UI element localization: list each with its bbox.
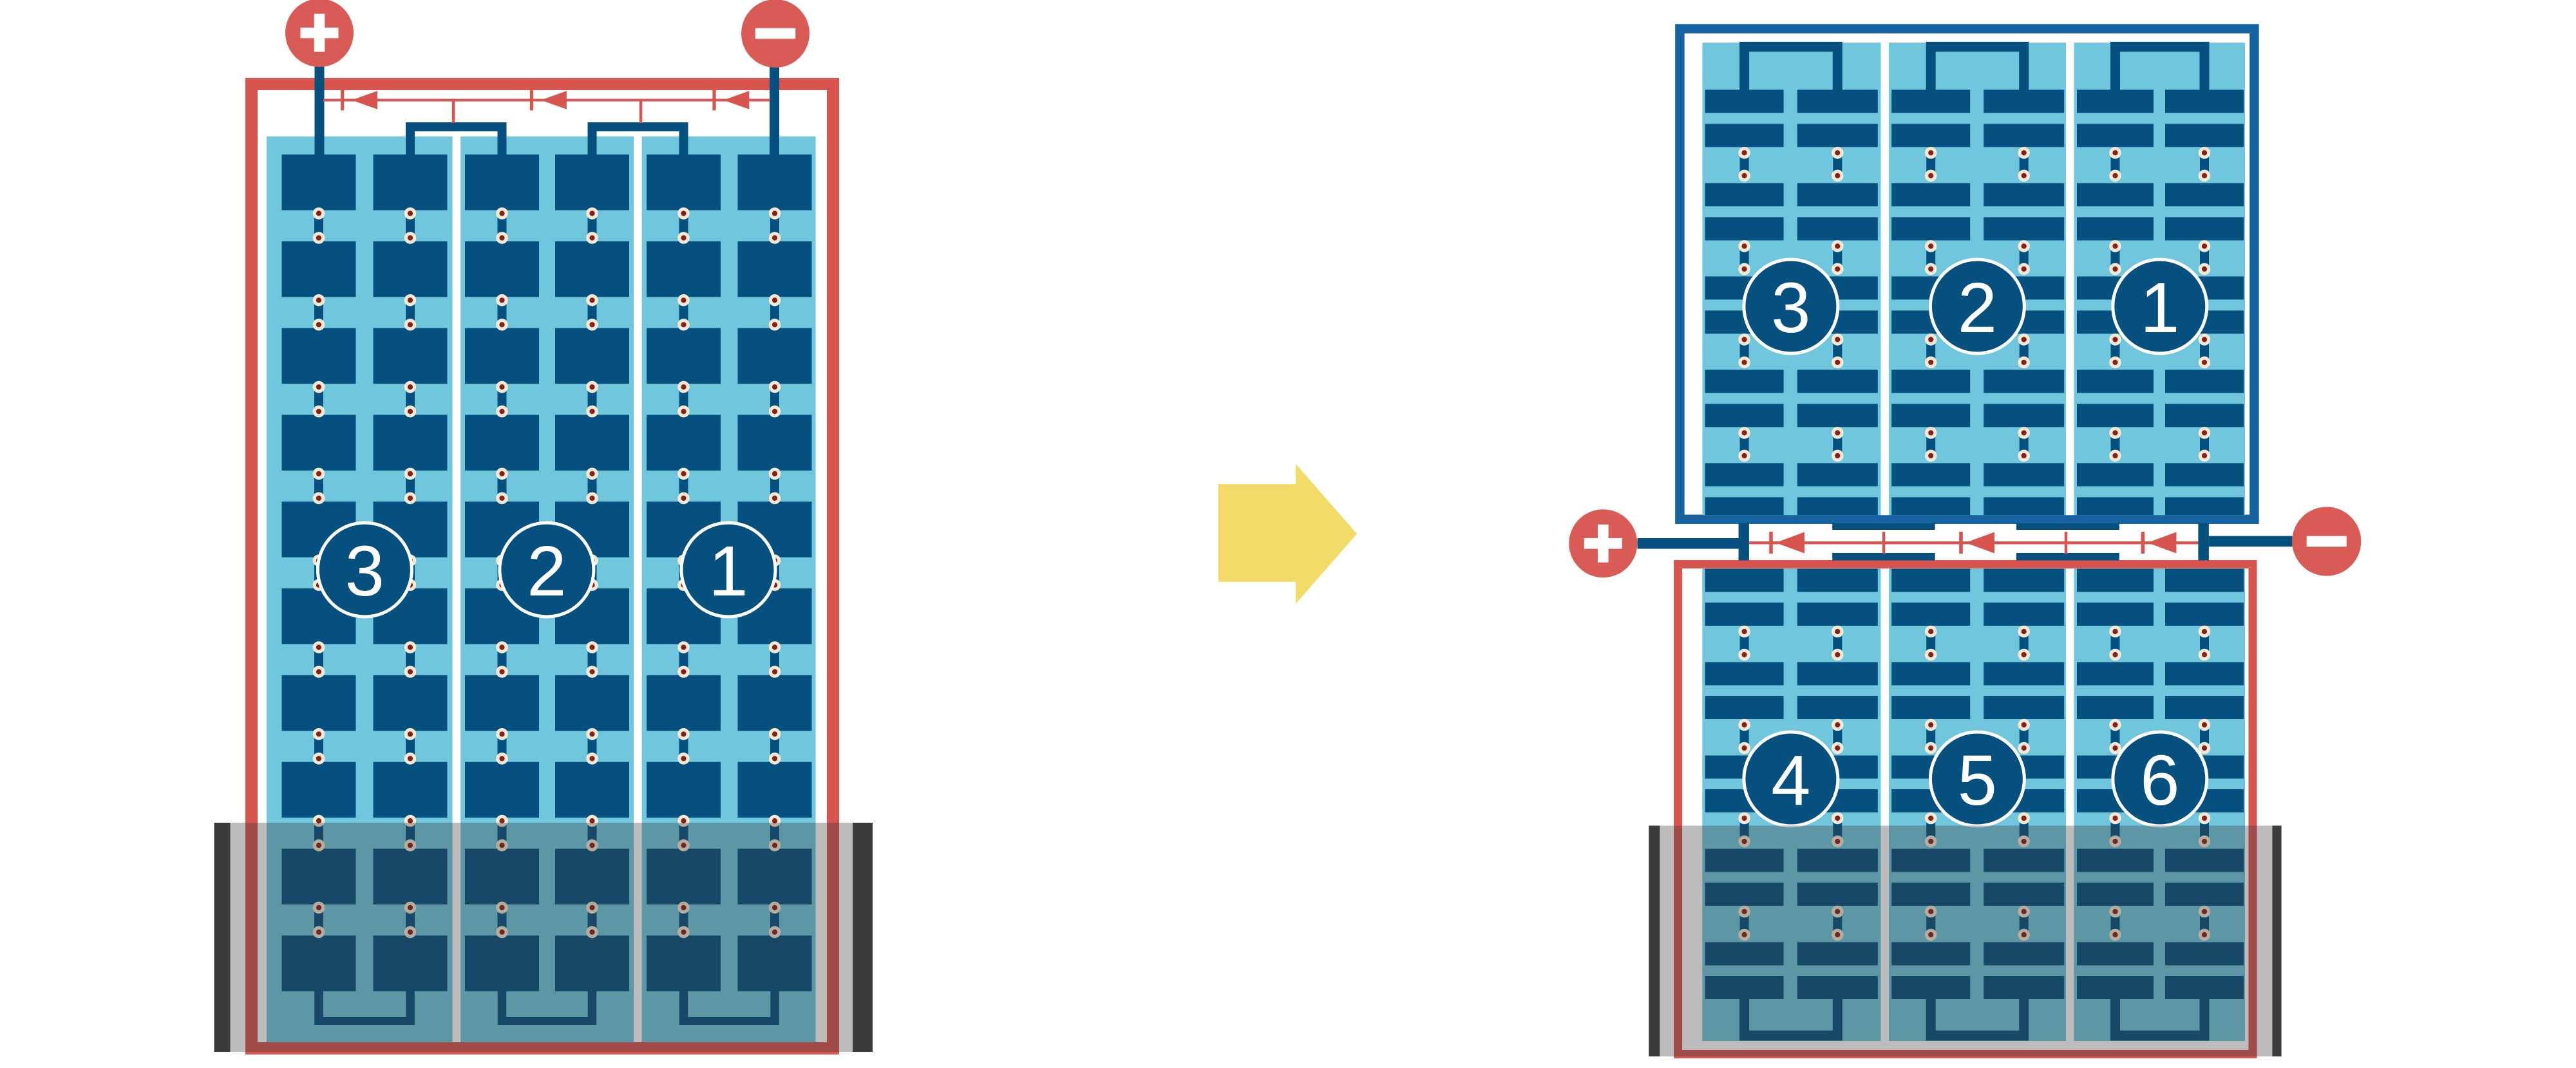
svg-text:3: 3 [1771, 268, 1810, 348]
svg-text:2: 2 [1958, 268, 1997, 348]
svg-text:2: 2 [527, 532, 566, 611]
svg-text:1: 1 [708, 532, 748, 611]
svg-text:1: 1 [2140, 268, 2179, 348]
svg-text:5: 5 [1958, 741, 1997, 820]
svg-text:4: 4 [1771, 741, 1810, 820]
svg-text:3: 3 [345, 532, 384, 611]
svg-text:6: 6 [2140, 741, 2179, 820]
